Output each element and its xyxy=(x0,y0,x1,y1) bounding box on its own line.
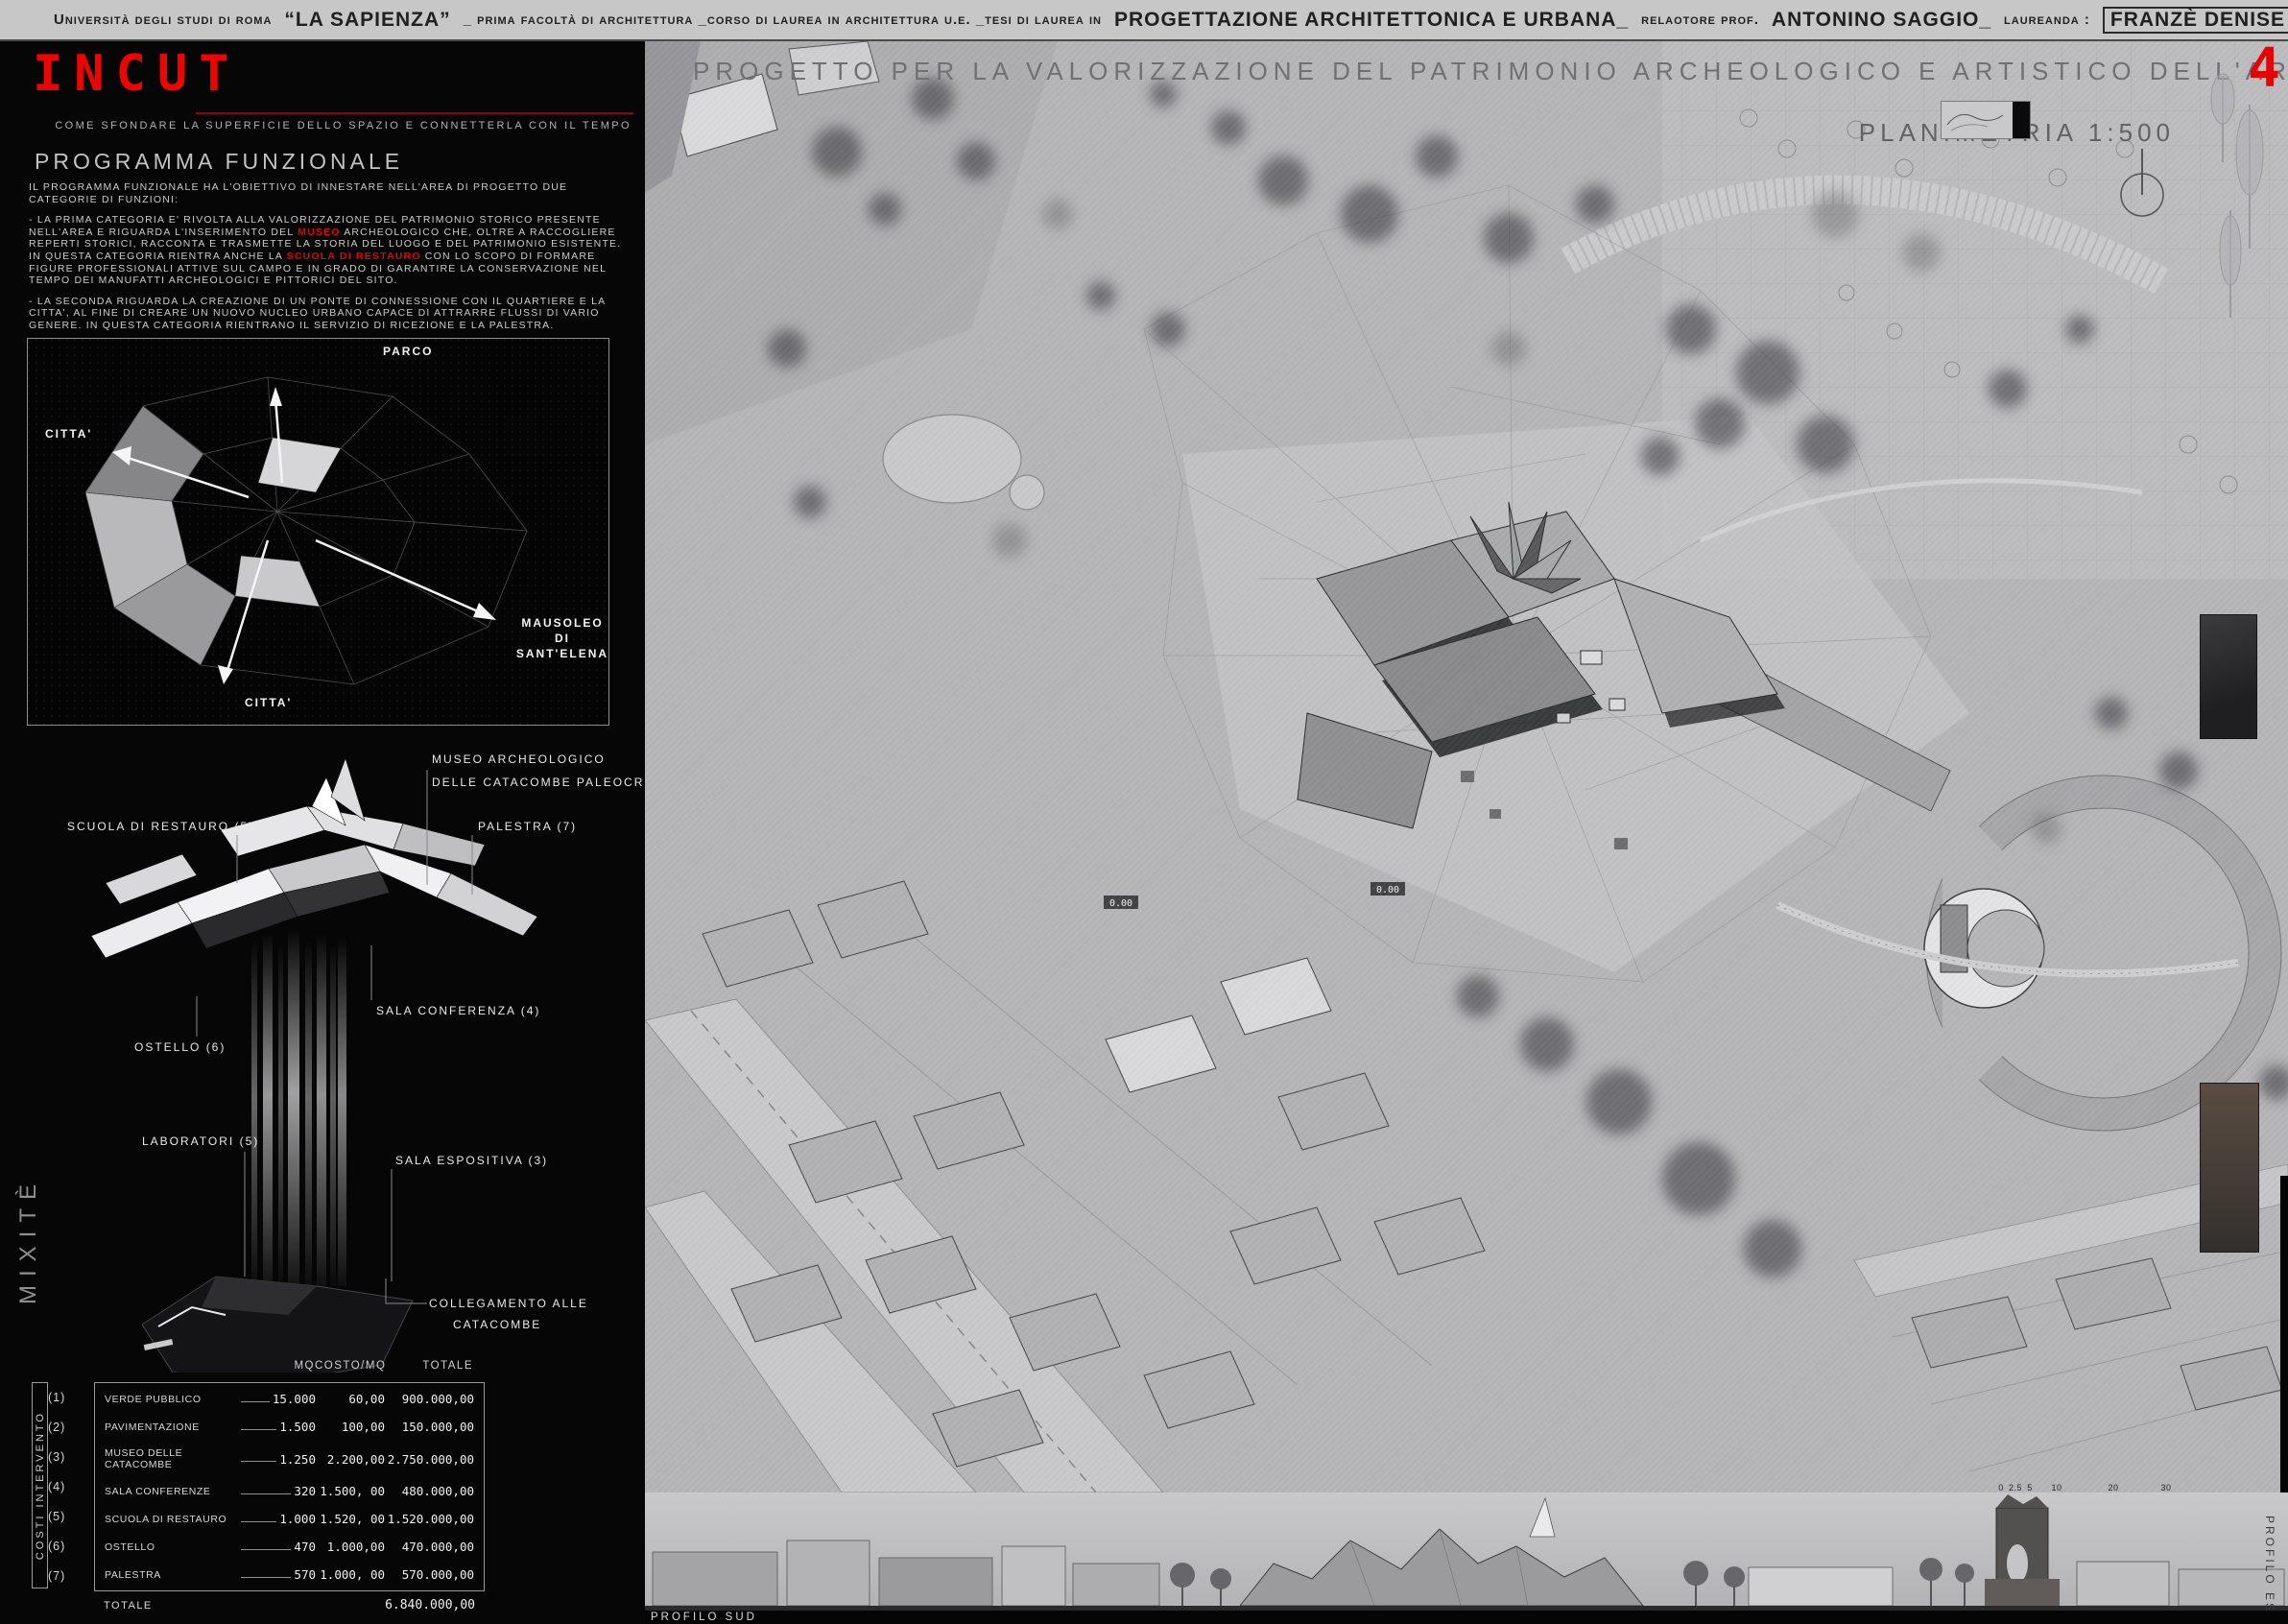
scale-tick: 5 xyxy=(2027,1483,2033,1493)
cost-total: 900.000,00 xyxy=(385,1392,474,1406)
cost-unit: 60,00 xyxy=(316,1392,385,1406)
cost-total: 470.000,00 xyxy=(385,1540,474,1554)
scale-tick: 20 xyxy=(2108,1483,2118,1493)
axon-label-ostello: OSTELLO (6) xyxy=(134,1040,226,1054)
header-advisor-name: ANTONINO SAGGIO_ xyxy=(1772,9,1991,32)
costs-vertical-label: COSTI INTERVENTO xyxy=(35,1411,46,1560)
axon-label-sala-conferenza: SALA CONFERENZA (4) xyxy=(376,1004,540,1017)
table-row: VERDE PUBBLICO 15.000 60,00 900.000,00 xyxy=(105,1392,474,1406)
cost-name: PAVIMENTAZIONE xyxy=(105,1421,239,1433)
south-profile-strip xyxy=(645,1493,2288,1611)
map-label-citta-bottom: CITTA' xyxy=(245,696,292,709)
north-arrow-icon xyxy=(2111,137,2173,229)
paragraph-3: IN QUESTA CATEGORIA RIENTRA ANCHE LA SCU… xyxy=(29,251,624,287)
section-title-programma: PROGRAMMA FUNZIONALE xyxy=(35,149,403,175)
paragraph-2: - LA PRIMA CATEGORIA E' RIVOLTA ALLA VAL… xyxy=(29,214,624,251)
table-row: PAVIMENTAZIONE 1.500 100,00 150.000,00 xyxy=(105,1420,474,1434)
map-label-mausoleo-line2: DI xyxy=(506,631,619,646)
axon-label-collegamento-line2: CATACOMBE xyxy=(453,1318,541,1331)
cost-unit: 100,00 xyxy=(316,1420,385,1434)
header-thesis-subject: PROGETTAZIONE ARCHITETTONICA E URBANA_ xyxy=(1114,9,1629,32)
axon-label-laboratori: LABORATORI (5) xyxy=(142,1134,259,1148)
project-logo: INCUT xyxy=(33,45,241,103)
cost-mq: 1.000 xyxy=(279,1512,316,1526)
row-number: (5) xyxy=(48,1510,88,1523)
axonometric-figure: MUSEO ARCHEOLOGICO DELLE CATACOMBE PALEO… xyxy=(0,739,645,1373)
map-label-parco: PARCO xyxy=(383,345,433,358)
row-number: (6) xyxy=(48,1540,88,1553)
concept-map-figure: PARCO CITTA' MAUSOLEO DI SANT'ELENA CITT… xyxy=(27,338,609,726)
axon-label-collegamento-line1: COLLEGAMENTO ALLE xyxy=(429,1297,588,1310)
cost-total: 480.000,00 xyxy=(385,1484,474,1498)
cost-total: 150.000,00 xyxy=(385,1420,474,1434)
north-indicator xyxy=(2111,137,2173,229)
header-sapienza: “LA SAPIENZA” xyxy=(284,9,450,32)
table-row: MUSEO DELLE CATACOMBE 1.250 2.200,00 2.7… xyxy=(105,1447,474,1470)
cost-name: SALA CONFERENZE xyxy=(105,1486,239,1497)
paragraph-3-pre: IN QUESTA CATEGORIA RIENTRA ANCHE LA xyxy=(29,251,287,262)
programma-text: IL PROGRAMMA FUNZIONALE HA L'OBIETTIVO D… xyxy=(29,181,624,332)
cost-name: PALESTRA xyxy=(105,1569,239,1581)
highlight-scuola-restauro: SCUOLA DI RESTAURO xyxy=(287,251,421,262)
key-map-block xyxy=(2013,102,2030,138)
level-marker: 0.00 xyxy=(1109,898,1132,909)
row-number: (4) xyxy=(48,1480,88,1493)
cost-mq: 1.500 xyxy=(279,1420,316,1434)
east-profile-trees xyxy=(2205,66,2273,325)
total-label: TOTALE xyxy=(104,1600,153,1612)
cost-name: MUSEO DELLE CATACOMBE xyxy=(105,1447,239,1470)
row-number: (1) xyxy=(48,1391,88,1404)
scale-tick: 10 xyxy=(2051,1483,2062,1493)
cost-name: OSTELLO xyxy=(105,1541,239,1553)
map-label-citta-left: CITTA' xyxy=(45,427,92,441)
row-number: (2) xyxy=(48,1421,88,1434)
axon-label-scuola: SCUOLA DI RESTAURO (5) xyxy=(67,820,254,833)
header-student-label: laureanda : xyxy=(2004,12,2090,28)
col-header-costo: COSTO/MQ xyxy=(315,1360,384,1372)
south-profile-drawing xyxy=(645,1493,2288,1611)
axon-label-sala-espositiva: SALA ESPOSITIVA (3) xyxy=(395,1154,548,1167)
fresco-photo-inset xyxy=(2200,1083,2259,1253)
costs-row-numbers: (1) (2) (3) (4) (5) (6) (7) xyxy=(48,1382,88,1591)
cost-mq: 320 xyxy=(294,1484,316,1498)
cost-name: SCUOLA DI RESTAURO xyxy=(105,1514,239,1525)
mixite-vertical-label: MIXITÈ xyxy=(15,1176,42,1304)
project-tagline: COME SFONDARE LA SUPERFICIE DELLO SPAZIO… xyxy=(55,120,632,131)
plan-title: PROGETTO PER LA VALORIZZAZIONE DEL PATRI… xyxy=(693,57,2288,86)
header-faculty-course: _ prima facoltà di architettura _corso d… xyxy=(464,12,1102,28)
table-row: PALESTRA 570 1.000, 00 570.000,00 xyxy=(105,1567,474,1582)
header-student-name: FRANZÈ DENISE xyxy=(2103,7,2288,34)
bottom-bar: PROFILO SUD xyxy=(645,1611,2288,1624)
map-label-mausoleo: MAUSOLEO DI SANT'ELENA xyxy=(506,615,619,661)
col-header-mq: MQ xyxy=(238,1360,315,1372)
concept-map-drawing xyxy=(28,339,608,725)
highlight-museo: MUSEO xyxy=(298,227,341,238)
logo-underline xyxy=(196,112,633,114)
level-marker: 0.00 xyxy=(1376,885,1399,896)
costs-vertical-label-box: COSTI INTERVENTO xyxy=(32,1382,48,1588)
paragraph-4: - LA SECONDA RIGUARDA LA CREAZIONE DI UN… xyxy=(29,296,624,332)
cost-unit: 1.000,00 xyxy=(316,1540,385,1554)
costs-column-headers: MQ COSTO/MQ TOTALE xyxy=(94,1360,485,1372)
map-label-mausoleo-line1: MAUSOLEO xyxy=(506,615,619,631)
table-row: OSTELLO 470 1.000,00 470.000,00 xyxy=(105,1540,474,1554)
col-header-totale: TOTALE xyxy=(384,1360,473,1372)
axon-label-museo-line1: MUSEO ARCHEOLOGICO xyxy=(432,752,606,766)
header-advisor-label: relaotore prof. xyxy=(1641,12,1759,28)
cost-total: 570.000,00 xyxy=(385,1567,474,1582)
table-row: SALA CONFERENZE 320 1.500, 00 480.000,00 xyxy=(105,1484,474,1498)
cost-name: VERDE PUBBLICO xyxy=(105,1394,239,1405)
cost-mq: 570 xyxy=(294,1567,316,1582)
cost-total: 1.520.000,00 xyxy=(385,1512,474,1526)
row-number: (7) xyxy=(48,1569,88,1583)
cost-unit: 1.500, 00 xyxy=(316,1484,385,1498)
cost-mq: 15.000 xyxy=(273,1392,316,1406)
header-bar: Università degli studi di roma “LA SAPIE… xyxy=(0,0,2288,41)
cost-mq: 470 xyxy=(294,1540,316,1554)
key-map-sketch xyxy=(1942,102,2011,138)
map-label-mausoleo-line3: SANT'ELENA xyxy=(506,646,619,661)
profile-south-label: PROFILO SUD xyxy=(645,1612,757,1623)
row-number: (3) xyxy=(48,1450,88,1464)
site-plan-drawing: 0.00 0.00 xyxy=(645,41,2288,1493)
cost-unit: 1.000, 00 xyxy=(316,1567,385,1582)
profile-east-label: PROFILO EST xyxy=(2263,1516,2276,1623)
site-photo-inset xyxy=(2200,614,2257,739)
axonometric-drawing xyxy=(0,739,645,1373)
scale-tick: 30 xyxy=(2160,1483,2171,1493)
paragraph-1: IL PROGRAMMA FUNZIONALE HA L'OBIETTIVO D… xyxy=(29,181,624,205)
costs-table: VERDE PUBBLICO 15.000 60,00 900.000,00 P… xyxy=(94,1382,485,1591)
scale-tick: 0 xyxy=(1998,1483,2004,1493)
cost-total: 2.750.000,00 xyxy=(385,1452,474,1467)
header-university: Università degli studi di roma xyxy=(54,12,272,28)
key-map-thumbnail xyxy=(1941,101,2031,139)
cost-mq: 1.250 xyxy=(279,1452,316,1467)
cost-unit: 1.520, 00 xyxy=(316,1512,385,1526)
empty-cell xyxy=(104,1360,238,1372)
sidebar: INCUT COME SFONDARE LA SUPERFICIE DELLO … xyxy=(0,41,645,1624)
thesis-board: Università degli studi di roma “LA SAPIE… xyxy=(0,0,2288,1624)
cost-unit: 2.200,00 xyxy=(316,1452,385,1467)
scale-tick: 2.5 xyxy=(2009,1483,2022,1493)
costs-total-row: TOTALE 6.840.000,00 xyxy=(94,1598,485,1612)
plan-area: 0.00 0.00 PROGETTO PER LA VALORIZZAZIONE… xyxy=(645,41,2288,1624)
table-row: SCUOLA DI RESTAURO 1.000 1.520, 00 1.520… xyxy=(105,1512,474,1526)
total-value: 6.840.000,00 xyxy=(385,1598,475,1612)
axon-label-palestra: PALESTRA (7) xyxy=(478,820,577,833)
